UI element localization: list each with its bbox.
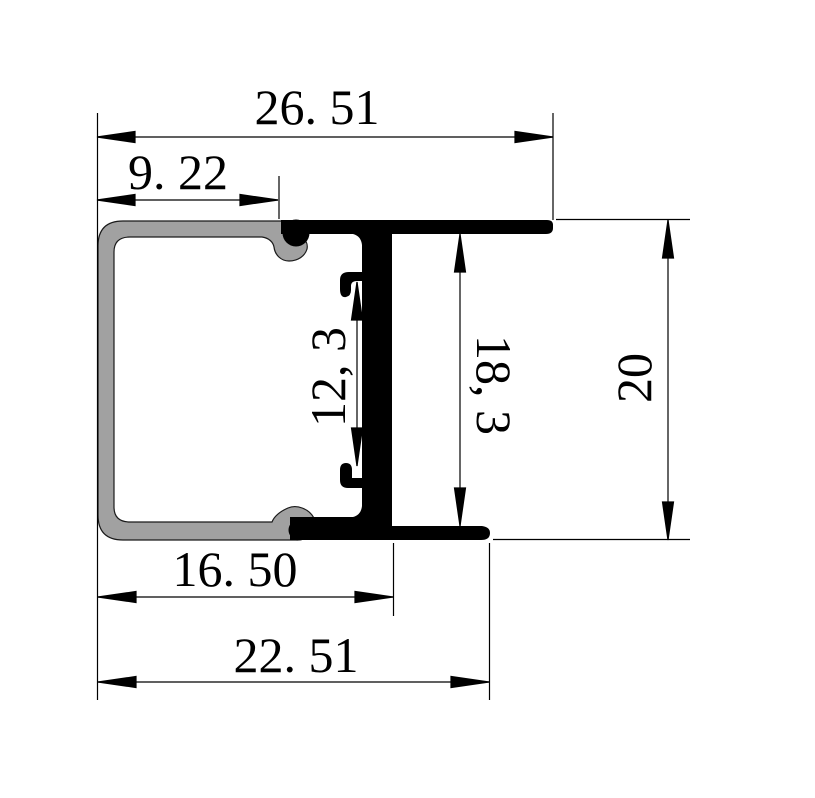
- channel-body: [98, 221, 315, 540]
- insert-stem-fillet-top: [353, 234, 362, 245]
- arrowhead-top: [455, 234, 466, 272]
- insert-stem: [362, 234, 392, 540]
- aluminium-channel-profile: [98, 221, 315, 540]
- insert-hook-lower: [340, 463, 362, 488]
- dim-label-channel-top-width: 9. 22: [128, 144, 228, 200]
- arrowhead-bottom: [663, 502, 674, 540]
- dim-bottom-inner-width: 16. 50: [98, 541, 394, 616]
- insert-stem-fillet-bottom: [353, 506, 362, 517]
- arrowhead-left: [98, 592, 136, 603]
- arrowhead-bottom: [352, 428, 363, 466]
- dim-label-bottom-width: 22. 51: [234, 627, 359, 683]
- profile-drawing-svg: 26. 51 9. 22 12, 3 18, 3: [0, 0, 815, 798]
- dimensions-layer: 26. 51 9. 22 12, 3 18, 3: [97, 79, 690, 700]
- dim-label-total-width: 26. 51: [255, 79, 380, 135]
- dim-slot-height: 12, 3: [300, 282, 363, 466]
- insert-bead-top: [283, 220, 310, 247]
- arrowhead-bottom: [455, 488, 466, 526]
- dim-insert-inner-height: 18, 3: [455, 234, 523, 526]
- arrowhead-right: [355, 592, 393, 603]
- dim-channel-top-width: 9. 22: [97, 144, 279, 219]
- dim-label-slot-height: 12, 3: [300, 327, 356, 427]
- arrowhead-right: [515, 132, 553, 143]
- arrowhead-left: [98, 677, 136, 688]
- arrowhead-top: [663, 220, 674, 258]
- insert-top-flange: [281, 220, 553, 234]
- dim-label-insert-height: 20: [606, 353, 662, 403]
- arrowhead-left: [97, 132, 135, 143]
- arrowhead-right: [451, 677, 489, 688]
- insert-bottom-bar-right: [392, 526, 490, 540]
- arrowhead-top: [352, 282, 363, 320]
- insert-bead-bottom: [289, 520, 310, 541]
- technical-drawing-canvas: 26. 51 9. 22 12, 3 18, 3: [0, 0, 815, 798]
- dim-label-insert-inner-height: 18, 3: [466, 335, 522, 435]
- arrowhead-right: [240, 195, 278, 206]
- dim-label-bottom-inner-width: 16. 50: [173, 541, 298, 597]
